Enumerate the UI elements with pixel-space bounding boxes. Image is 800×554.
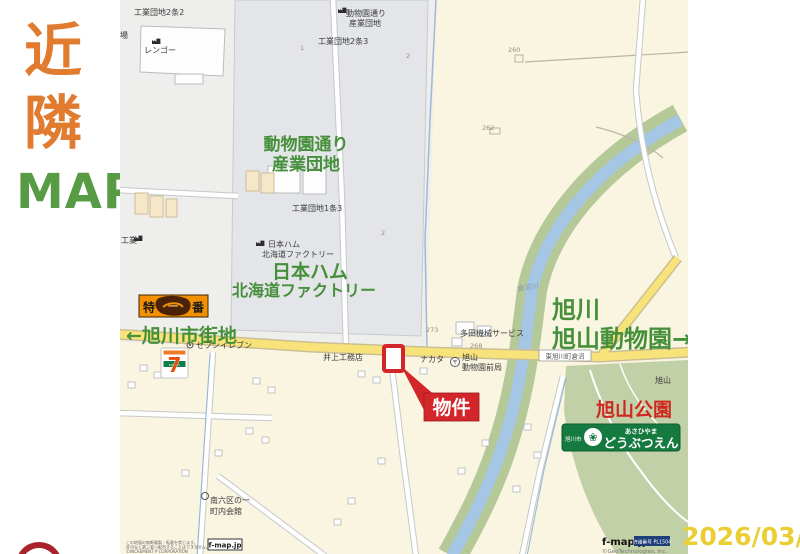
page-title-kanji-2: 隣 — [24, 94, 82, 152]
num-1: 1 — [300, 44, 304, 52]
label-to-city: ←旭川市街地 — [126, 324, 237, 347]
label-zoo-street-big-2: 産業団地 — [272, 154, 340, 175]
license-badge-text: 許諾番号 PL1504 — [633, 539, 672, 546]
label-minami-1: 南六区の一 — [210, 495, 250, 505]
label-inoue: 井上工務店 — [323, 352, 363, 362]
tokuichiban-center: 一 — [168, 302, 178, 313]
postal-mark: 〒 — [452, 360, 458, 367]
seven-eleven-logo: ELEVEn 7 — [161, 348, 188, 378]
label-rengo: レンゴー — [144, 45, 176, 55]
page-title-kanji-1: 近 — [24, 22, 82, 80]
label-nipponham-small-2: 北海道ファクトリー — [262, 249, 334, 259]
label-asahikawa-1: 旭川 — [551, 296, 600, 324]
road-sign-east-text: 東旭川町倉沼 — [546, 352, 585, 361]
tokuichiban-left: 特 — [143, 300, 155, 315]
label-fragment: 場 — [120, 30, 128, 40]
label-nakata: ナカタ — [420, 355, 444, 364]
map-canvas: 工業団地2条2 動物園通り 産業団地 工業団地2条3 レンゴー 場 工業 工業団… — [120, 0, 688, 554]
zoo-logo-emblem: ❀ — [588, 431, 597, 444]
label-asahikawa-2: 旭山動物園→ — [551, 325, 688, 353]
num-260: 260 — [508, 46, 520, 54]
num-2a: 2 — [406, 52, 410, 60]
label-nipponham-big-1: 日本ハム — [272, 260, 348, 283]
label-zoo-street-small-2: 産業団地 — [349, 18, 381, 28]
property-banner-text: 物件 — [432, 396, 470, 419]
date-stamp: 2026/03/26 — [682, 522, 800, 551]
label-industrial-2-2: 工業団地2条2 — [134, 7, 184, 17]
geo-credit: ©GeoTechnologies, Inc. — [602, 548, 667, 554]
label-asahiyama-small: 旭山 — [655, 375, 671, 385]
label-industrial-2-3: 工業団地2条3 — [318, 36, 368, 46]
num-2b: 2 — [381, 229, 385, 237]
num-262: 262 — [482, 124, 494, 132]
num-268: 268 — [470, 342, 482, 350]
neighborhood-map: 工業団地2条2 動物園通り 産業団地 工業団地2条3 レンゴー 場 工業 工業団… — [120, 0, 688, 554]
zoo-logo-name: どうぶつえん — [603, 436, 679, 451]
label-zoo-street-small-1: 動物園通り — [346, 8, 386, 18]
label-nipponham-small-1: 日本ハム — [268, 239, 300, 249]
fmap-box-text: f-map.jp — [209, 542, 242, 550]
label-industrial-1-3: 工業団地1条3 — [292, 203, 342, 213]
tokuichiban-logo: 特 一 番 — [139, 295, 208, 317]
flyer-page: 近 隣 MAP — [0, 0, 800, 554]
label-post-office-1: 旭山 — [462, 352, 478, 362]
label-minami-2: 町内会館 — [210, 506, 242, 516]
road-sign-east: 東旭川町倉沼 — [539, 350, 591, 361]
seven-eleven-seven: 7 — [168, 353, 182, 377]
label-post-office-2: 動物園前局 — [462, 362, 502, 372]
num-273: 273 — [426, 326, 438, 334]
zoo-logo: 旭川市 ❀ あさひやま どうぶつえん — [562, 424, 680, 451]
zoo-logo-reading: あさひやま — [625, 427, 658, 436]
property-marker — [384, 346, 403, 371]
label-zoo-street-big-1: 動物園通り — [264, 134, 349, 155]
copyright-line-3: ©INCREMENT P CORPORATION — [126, 549, 188, 554]
label-nipponham-big-2: 北海道ファクトリー — [232, 281, 376, 300]
label-park-name: 旭山公園 — [595, 399, 672, 421]
red-stamp-partial — [16, 542, 62, 554]
zoo-logo-city: 旭川市 — [565, 435, 582, 443]
tokuichiban-right: 番 — [191, 300, 205, 315]
label-tada: 多田機械サービス — [460, 328, 524, 338]
